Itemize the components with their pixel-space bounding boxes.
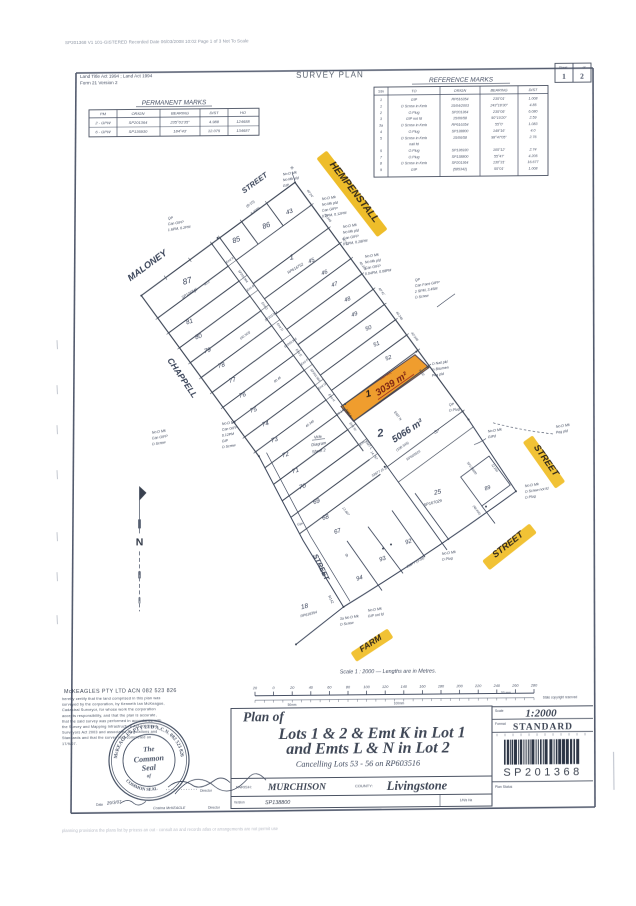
svg-text:DIST: DIST bbox=[209, 110, 219, 115]
svg-text:SP138800: SP138800 bbox=[452, 155, 469, 159]
svg-text:50mm: 50mm bbox=[288, 703, 297, 707]
svg-text:McKEAGLES PTY LTD ACN 082: McKEAGLES PTY LTD ACN 082 523 826 bbox=[64, 688, 177, 695]
svg-text:of: of bbox=[147, 774, 153, 779]
svg-text:MURCHISON: MURCHISON bbox=[267, 783, 327, 794]
svg-text:CHAPPELL: CHAPPELL bbox=[165, 356, 199, 400]
svg-text:2.59: 2.59 bbox=[529, 116, 537, 120]
svg-text:GIP not fd: GIP not fd bbox=[406, 117, 423, 121]
svg-text:100mm: 100mm bbox=[394, 701, 405, 705]
svg-text:243°18'30": 243°18'30" bbox=[489, 103, 508, 107]
svg-text:14.757: 14.757 bbox=[370, 450, 379, 460]
svg-text:Sheet 2: Sheet 2 bbox=[312, 447, 327, 454]
svg-text:16.677: 16.677 bbox=[528, 160, 540, 164]
svg-text:3: 3 bbox=[380, 117, 382, 121]
svg-text:Plan Status: Plan Status bbox=[495, 785, 513, 789]
svg-text:Format: Format bbox=[495, 722, 506, 726]
svg-text:QP: QP bbox=[449, 402, 455, 407]
svg-text:55°01': 55°01' bbox=[494, 167, 504, 171]
svg-text:0.12PM: 0.12PM bbox=[222, 432, 235, 438]
svg-text:17/9/07.: 17/9/07. bbox=[62, 742, 77, 746]
svg-text:68: 68 bbox=[321, 513, 330, 522]
svg-text:20: 20 bbox=[252, 686, 258, 690]
svg-text:SP201368 V1 101-GISTERED Reco: SP201368 V1 101-GISTERED Recorded Date 0… bbox=[65, 38, 249, 45]
svg-text:SP136930: SP136930 bbox=[452, 148, 469, 152]
svg-text:73: 73 bbox=[270, 436, 279, 445]
svg-text:(8-10): (8-10) bbox=[245, 200, 255, 209]
svg-text:Cancelling Lots 53 - 56 on RP6: Cancelling Lots 53 - 56 on RP603516 bbox=[296, 759, 421, 769]
svg-text:184°43': 184°43' bbox=[173, 128, 187, 133]
svg-text:76: 76 bbox=[238, 391, 247, 400]
svg-text:220: 220 bbox=[474, 684, 482, 688]
svg-text:50 mm: 50 mm bbox=[501, 691, 511, 695]
svg-text:Peg pld: Peg pld bbox=[556, 429, 570, 435]
svg-text:130°31': 130°31' bbox=[493, 161, 505, 165]
svg-text:State copyright reserved: State copyright reserved bbox=[543, 695, 578, 699]
svg-text:3a: 3a bbox=[379, 124, 383, 128]
svg-text:74: 74 bbox=[261, 420, 270, 429]
svg-text:of: of bbox=[583, 66, 586, 70]
svg-text:ORIGN: ORIGN bbox=[454, 89, 467, 93]
svg-text:80: 80 bbox=[194, 332, 203, 341]
svg-text:124688: 124688 bbox=[236, 119, 250, 124]
svg-text:86: 86 bbox=[261, 220, 272, 231]
svg-text:GIP: GIP bbox=[411, 98, 418, 102]
svg-text:69: 69 bbox=[312, 497, 321, 506]
svg-text:Director: Director bbox=[208, 806, 221, 810]
svg-text:SP138800: SP138800 bbox=[466, 461, 478, 476]
svg-text:PARISH:: PARISH: bbox=[236, 784, 252, 789]
svg-text:1:2000: 1:2000 bbox=[525, 707, 557, 719]
svg-text:149°16': 149°16' bbox=[493, 129, 505, 133]
svg-text:REFERENCE MARKS: REFERENCE MARKS bbox=[429, 76, 494, 84]
svg-text:surveyed by the corporation,: surveyed by the corporation, by Kenneth … bbox=[62, 702, 165, 707]
svg-text:240: 240 bbox=[493, 684, 501, 688]
svg-text:5066 m²: 5066 m² bbox=[389, 416, 425, 445]
svg-text:2: 2 bbox=[580, 72, 584, 81]
svg-text:1: 1 bbox=[380, 98, 382, 102]
svg-text:PERMANENT MARKS: PERMANENT MARKS bbox=[142, 99, 207, 107]
svg-text:71: 71 bbox=[291, 467, 300, 476]
svg-text:GIP: GIP bbox=[222, 439, 229, 444]
svg-text:Standards and that the survey: Standards and that the survey was comple… bbox=[62, 735, 151, 740]
svg-text:QP: QP bbox=[415, 277, 421, 282]
svg-text:SP167029: SP167029 bbox=[423, 498, 443, 508]
svg-text:GIPd: GIPd bbox=[488, 434, 498, 439]
svg-text:No D Mk: No D Mk bbox=[488, 427, 503, 433]
svg-text:75: 75 bbox=[249, 406, 258, 415]
svg-text:94: 94 bbox=[356, 575, 365, 583]
svg-text:13.607: 13.607 bbox=[341, 506, 350, 516]
svg-text:O.Plug: O.Plug bbox=[409, 130, 420, 134]
svg-text:SP136930: SP136930 bbox=[129, 129, 148, 134]
svg-text:(40.343): (40.343) bbox=[239, 330, 251, 340]
svg-text:PM: PM bbox=[100, 111, 107, 116]
svg-text:9: 9 bbox=[380, 168, 382, 172]
svg-text:Emt A: Emt A bbox=[225, 256, 234, 264]
svg-text:12.075: 12.075 bbox=[208, 128, 221, 133]
svg-text:O.Plug: O.Plug bbox=[409, 155, 420, 159]
svg-text:40: 40 bbox=[309, 686, 314, 690]
svg-text:55°47': 55°47' bbox=[494, 154, 504, 158]
svg-text:160: 160 bbox=[419, 685, 426, 689]
svg-text:Peg pld: Peg pld bbox=[432, 372, 446, 378]
svg-text:8: 8 bbox=[380, 162, 382, 166]
svg-text:0: 0 bbox=[273, 686, 276, 690]
svg-text:TO: TO bbox=[411, 89, 416, 93]
svg-text:O.Plug: O.Plug bbox=[409, 111, 420, 115]
svg-text:15/06/58: 15/06/58 bbox=[453, 116, 467, 120]
svg-text:1: 1 bbox=[562, 72, 566, 81]
svg-text:SP201368: SP201368 bbox=[503, 766, 582, 779]
svg-text:15/04/2003: 15/04/2003 bbox=[451, 104, 469, 108]
svg-text:R142: R142 bbox=[327, 595, 334, 604]
svg-text:Seal: Seal bbox=[141, 763, 157, 773]
svg-text:(585342): (585342) bbox=[453, 167, 467, 171]
svg-text:1: 1 bbox=[380, 105, 382, 109]
svg-text:STANDARD: STANDARD bbox=[513, 722, 573, 733]
svg-text:1.008: 1.008 bbox=[529, 97, 538, 101]
svg-text:BEARING: BEARING bbox=[171, 110, 189, 115]
svg-text:89: 89 bbox=[484, 485, 492, 493]
svg-text:4.0: 4.0 bbox=[531, 128, 536, 132]
svg-text:1/N/s Ha: 1/N/s Ha bbox=[460, 798, 473, 802]
svg-text:48: 48 bbox=[344, 296, 353, 304]
svg-text:20: 20 bbox=[289, 686, 295, 690]
svg-text:105°12': 105°12' bbox=[493, 148, 505, 152]
svg-text:87: 87 bbox=[182, 275, 194, 287]
svg-text:280: 280 bbox=[530, 684, 538, 688]
svg-text:20.146: 20.146 bbox=[335, 407, 346, 417]
svg-text:planning provisions the plans: planning provisions the plans list by pr… bbox=[62, 826, 279, 833]
svg-text:40.2: 40.2 bbox=[203, 280, 211, 287]
svg-text:200: 200 bbox=[455, 684, 463, 688]
svg-text:25: 25 bbox=[432, 488, 442, 497]
svg-text:SP201364: SP201364 bbox=[452, 161, 469, 165]
svg-text:GIP not fd: GIP not fd bbox=[368, 612, 385, 618]
svg-text:80.46: 80.46 bbox=[273, 375, 282, 383]
svg-text:BEARING: BEARING bbox=[490, 88, 507, 92]
svg-text:O.Plug: O.Plug bbox=[409, 149, 420, 153]
svg-text:180: 180 bbox=[438, 684, 445, 688]
svg-text:GIP: GIP bbox=[297, 522, 303, 526]
svg-text:O Screw in Kerb: O Screw in Kerb bbox=[401, 161, 427, 165]
svg-text:Cosima McKEAGLE: Cosima McKEAGLE bbox=[153, 806, 186, 810]
svg-text:No D Mk: No D Mk bbox=[442, 550, 457, 556]
svg-text:51: 51 bbox=[373, 341, 381, 349]
svg-text:SP201364: SP201364 bbox=[129, 120, 148, 125]
svg-text:Plan of: Plan of bbox=[243, 709, 285, 724]
svg-text:40°41': 40°41' bbox=[377, 287, 386, 297]
svg-text:235°01': 235°01' bbox=[492, 97, 505, 101]
svg-text:Version: Version bbox=[234, 800, 245, 804]
svg-text:STREET: STREET bbox=[311, 552, 332, 582]
svg-text:93: 93 bbox=[379, 555, 388, 563]
svg-text:in Bitumen: in Bitumen bbox=[432, 365, 449, 371]
svg-text:81: 81 bbox=[185, 318, 194, 327]
svg-text:Can GIFP: Can GIFP bbox=[152, 434, 169, 440]
svg-text:72: 72 bbox=[281, 450, 290, 459]
svg-text:15/06/58: 15/06/58 bbox=[453, 136, 467, 140]
svg-text:2 - GPW: 2 - GPW bbox=[94, 120, 112, 125]
svg-text:7: 7 bbox=[380, 155, 383, 159]
svg-text:N: N bbox=[136, 536, 144, 548]
svg-text:67: 67 bbox=[333, 527, 342, 536]
svg-text:Director: Director bbox=[200, 789, 213, 793]
svg-text:60: 60 bbox=[327, 686, 332, 690]
svg-text:O Screw in Kerb: O Screw in Kerb bbox=[401, 136, 427, 140]
svg-text:4.205: 4.205 bbox=[529, 154, 538, 158]
svg-text:Emt E: Emt E bbox=[295, 348, 304, 358]
svg-text:6 - GPW: 6 - GPW bbox=[95, 129, 112, 134]
svg-text:50°10'20": 50°10'20" bbox=[491, 116, 507, 120]
svg-text:COUNTY:: COUNTY: bbox=[355, 783, 373, 788]
svg-text:No D Mk: No D Mk bbox=[556, 423, 571, 429]
svg-text:43: 43 bbox=[285, 207, 294, 216]
svg-text:Can GIFP: Can GIFP bbox=[222, 425, 239, 431]
svg-text:The: The bbox=[143, 745, 155, 754]
svg-text:O Plug: O Plug bbox=[525, 494, 536, 500]
svg-text:100: 100 bbox=[363, 685, 370, 689]
svg-text:SP138800: SP138800 bbox=[452, 129, 469, 133]
svg-text:O Plug: O Plug bbox=[449, 407, 460, 413]
svg-text:6.080: 6.080 bbox=[529, 109, 538, 113]
svg-text:134687: 134687 bbox=[236, 128, 250, 133]
svg-text:EMT N: EMT N bbox=[393, 410, 403, 421]
svg-text:Form 21 Version 2: Form 21 Version 2 bbox=[80, 80, 118, 85]
svg-text:29/3/07: 29/3/07 bbox=[106, 799, 123, 806]
svg-text:Scale 1 : 2000 — Lengths are: Scale 1 : 2000 — Lengths are in Metres. bbox=[340, 669, 436, 676]
svg-text:RP616354: RP616354 bbox=[452, 97, 469, 101]
svg-text:SP138800: SP138800 bbox=[265, 800, 290, 806]
svg-text:85: 85 bbox=[231, 234, 243, 246]
svg-text:3a No D Mk: 3a No D Mk bbox=[340, 614, 360, 621]
svg-text:2.74: 2.74 bbox=[529, 148, 537, 152]
svg-text:GIP: GIP bbox=[411, 168, 418, 172]
svg-text:140: 140 bbox=[401, 685, 408, 689]
svg-text:18: 18 bbox=[300, 602, 309, 611]
svg-text:50: 50 bbox=[365, 325, 374, 333]
svg-text:No Mk pld: No Mk pld bbox=[283, 176, 301, 183]
svg-text:ORIGN: ORIGN bbox=[131, 111, 144, 116]
svg-text:O Screw in Kerb: O Screw in Kerb bbox=[401, 104, 427, 108]
svg-text:40°24': 40°24' bbox=[306, 189, 315, 199]
svg-text:Date: Date bbox=[96, 803, 103, 807]
svg-text:40.348: 40.348 bbox=[305, 419, 315, 428]
svg-text:5: 5 bbox=[380, 149, 382, 153]
svg-text:120: 120 bbox=[382, 685, 389, 689]
svg-text:QP: QP bbox=[168, 216, 174, 221]
svg-text:235°05': 235°05' bbox=[492, 110, 505, 114]
svg-text:Stn: Stn bbox=[378, 90, 384, 94]
svg-text:Land Title Act 1994 ; Land Act: Land Title Act 1994 ; Land Act 1994 bbox=[80, 73, 153, 79]
svg-text:DIST: DIST bbox=[529, 88, 538, 92]
svg-text:✛: ✛ bbox=[290, 165, 294, 170]
svg-text:and Emts L & N in Lot 2: and Emts L & N in Lot 2 bbox=[286, 739, 449, 758]
svg-text:Livingstone: Livingstone bbox=[386, 778, 448, 793]
svg-text:235°01'35": 235°01'35" bbox=[169, 119, 190, 124]
svg-text:O Plug: O Plug bbox=[442, 556, 453, 562]
svg-text:4.988: 4.988 bbox=[209, 119, 220, 124]
svg-text:4: 4 bbox=[380, 130, 382, 134]
svg-text:O Screw: O Screw bbox=[222, 443, 237, 449]
svg-text:40°248: 40°248 bbox=[410, 331, 419, 342]
svg-text:5: 5 bbox=[380, 136, 382, 140]
svg-text:77: 77 bbox=[228, 376, 237, 385]
svg-text:260: 260 bbox=[511, 684, 519, 688]
svg-text:2.76: 2.76 bbox=[529, 135, 537, 139]
svg-text:47: 47 bbox=[331, 281, 340, 289]
svg-text:1.008: 1.008 bbox=[529, 167, 538, 171]
svg-text:RP616752: RP616752 bbox=[287, 262, 305, 275]
svg-text:2: 2 bbox=[375, 427, 384, 440]
svg-text:Scale: Scale bbox=[495, 709, 504, 713]
svg-text:hereby certify that the land c: hereby certify that the land comprised i… bbox=[62, 696, 161, 701]
svg-text:SP201364: SP201364 bbox=[452, 110, 469, 114]
svg-text:(48.405): (48.405) bbox=[472, 504, 482, 515]
svg-text:nail fd: nail fd bbox=[409, 142, 420, 146]
svg-text:49: 49 bbox=[351, 311, 360, 319]
svg-text:23977 (3-34): 23977 (3-34) bbox=[405, 556, 425, 569]
svg-text:MALONEY: MALONEY bbox=[126, 247, 170, 283]
svg-text:O Screw in Kerb: O Screw in Kerb bbox=[401, 123, 427, 127]
svg-text:Cadastral Surveyor, for whose: Cadastral Surveyor, for whose work the c… bbox=[62, 707, 156, 712]
svg-text:9: 9 bbox=[345, 553, 349, 559]
svg-text:SP201364: SP201364 bbox=[264, 310, 279, 322]
svg-text:2: 2 bbox=[379, 111, 382, 115]
svg-text:33977 (3-2): 33977 (3-2) bbox=[371, 466, 388, 478]
svg-text:O Screw: O Screw bbox=[415, 294, 430, 300]
svg-text:80: 80 bbox=[346, 685, 351, 689]
svg-text:Emt W: Emt W bbox=[348, 422, 357, 433]
svg-text:52: 52 bbox=[385, 354, 394, 362]
svg-text:HO: HO bbox=[240, 110, 246, 115]
svg-text:4.85: 4.85 bbox=[530, 103, 537, 107]
svg-text:98°47'05": 98°47'05" bbox=[491, 135, 507, 139]
svg-text:accepts responsibility, and th: accepts responsibility, and that the pla… bbox=[62, 713, 157, 718]
svg-text:RP616354: RP616354 bbox=[452, 123, 469, 127]
svg-text:SURVEY PLAN: SURVEY PLAN bbox=[296, 70, 364, 80]
svg-text:78: 78 bbox=[217, 361, 226, 370]
svg-text:O Screw: O Screw bbox=[340, 621, 355, 627]
svg-text:Emt D: Emt D bbox=[276, 322, 285, 332]
svg-text:RP616354: RP616354 bbox=[300, 610, 317, 618]
svg-text:STREET: STREET bbox=[240, 169, 270, 195]
svg-text:Sheet: Sheet bbox=[559, 66, 567, 70]
svg-text:57: 57 bbox=[434, 428, 441, 434]
svg-text:O Screw: O Screw bbox=[152, 440, 167, 446]
svg-text:1.083: 1.083 bbox=[529, 122, 538, 126]
svg-text:55°0': 55°0' bbox=[495, 122, 503, 126]
